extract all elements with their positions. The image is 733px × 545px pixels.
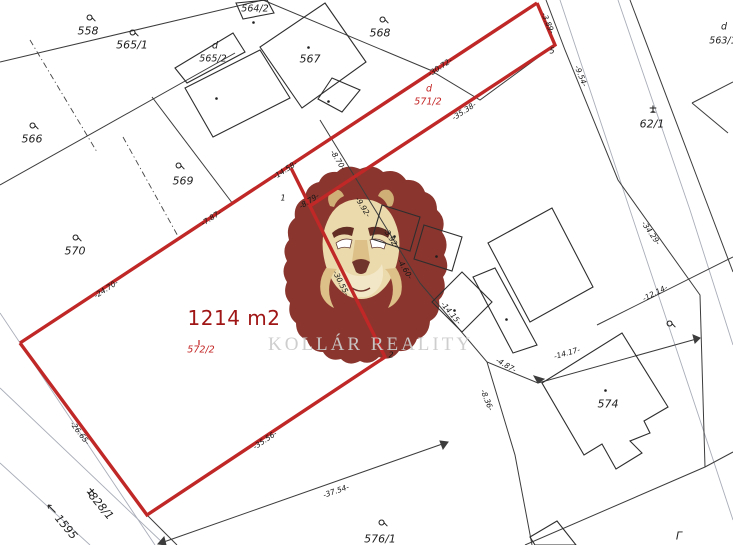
grass-symbol-icon <box>128 25 142 44</box>
dot-symbol-icon <box>251 10 256 29</box>
parcel-label: 571/2 <box>414 97 441 108</box>
vertex-label: 5 <box>549 47 554 56</box>
parcel-label: 565/2 <box>199 54 226 65</box>
dot-symbol-icon <box>214 86 219 105</box>
map-canvas <box>0 0 733 545</box>
watermark-brand: KOLLÁR REALITY <box>268 334 473 356</box>
parcel-label: 1214 m2 <box>188 306 281 330</box>
grass-symbol-icon <box>378 12 392 31</box>
parcel-label: 567 <box>300 53 321 66</box>
tick-symbol-icon <box>196 332 202 351</box>
grass-symbol-icon <box>28 118 42 137</box>
grass-symbol-icon <box>665 316 679 335</box>
dot-symbol-icon <box>504 307 509 326</box>
cadastral-map: KOLLÁR REALITY 558565/1564/2d565/2567568… <box>0 0 733 545</box>
club-symbol-icon <box>647 101 659 120</box>
dot-symbol-icon <box>392 224 397 243</box>
grass-symbol-icon <box>377 515 391 534</box>
parcel-label: 576/1 <box>364 533 396 545</box>
dot-symbol-icon <box>452 298 457 317</box>
parcel-label: 563/1 <box>709 36 733 47</box>
parcel-label: 574 <box>598 398 619 411</box>
dot-symbol-icon <box>541 535 546 545</box>
grass-symbol-icon <box>71 230 85 249</box>
parcel-label: d <box>721 22 727 33</box>
vertex-label: 1 <box>280 194 285 203</box>
dot-symbol-icon <box>603 378 608 397</box>
dash-dot-boundaries <box>30 40 179 238</box>
parcel-label: d <box>426 84 432 95</box>
grass-symbol-icon <box>85 10 99 29</box>
dot-symbol-icon <box>434 244 439 263</box>
grass-symbol-icon <box>174 158 188 177</box>
parcel-label: Γ <box>676 530 682 543</box>
dot-symbol-icon <box>306 35 311 54</box>
vertex-label: 2 <box>388 351 393 360</box>
arrow-symbol-icon <box>45 500 58 519</box>
parcel-label: d <box>212 41 218 52</box>
dot-symbol-icon <box>326 89 331 108</box>
